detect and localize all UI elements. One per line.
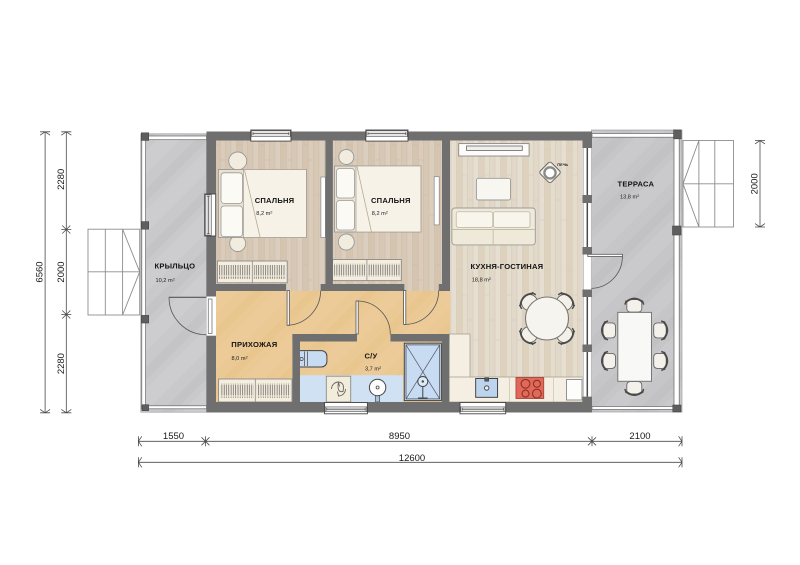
svg-text:ПРИХОЖАЯ: ПРИХОЖАЯ <box>231 340 277 349</box>
svg-text:ТЕРРАСА: ТЕРРАСА <box>618 180 655 189</box>
svg-text:2280: 2280 <box>56 169 67 190</box>
svg-text:2280: 2280 <box>56 353 67 374</box>
svg-text:ПЕЧЬ: ПЕЧЬ <box>557 162 568 167</box>
svg-text:2100: 2100 <box>629 431 650 442</box>
svg-text:13,8 m2: 13,8 m2 <box>620 193 640 201</box>
svg-text:СПАЛЬНЯ: СПАЛЬНЯ <box>371 196 411 205</box>
svg-text:1550: 1550 <box>163 431 184 442</box>
svg-text:8950: 8950 <box>389 431 410 442</box>
svg-text:КУХНЯ-ГОСТИНАЯ: КУХНЯ-ГОСТИНАЯ <box>471 262 544 271</box>
svg-text:СПАЛЬНЯ: СПАЛЬНЯ <box>255 196 295 205</box>
svg-text:С/У: С/У <box>365 352 378 361</box>
svg-text:2000: 2000 <box>56 261 67 282</box>
svg-text:КРЫЛЬЦО: КРЫЛЬЦО <box>155 262 196 271</box>
svg-text:6560: 6560 <box>35 261 46 282</box>
svg-text:2000: 2000 <box>749 173 760 194</box>
svg-text:10,2 m2: 10,2 m2 <box>156 277 176 285</box>
svg-text:12600: 12600 <box>399 453 425 464</box>
svg-text:18,8 m2: 18,8 m2 <box>472 276 492 284</box>
